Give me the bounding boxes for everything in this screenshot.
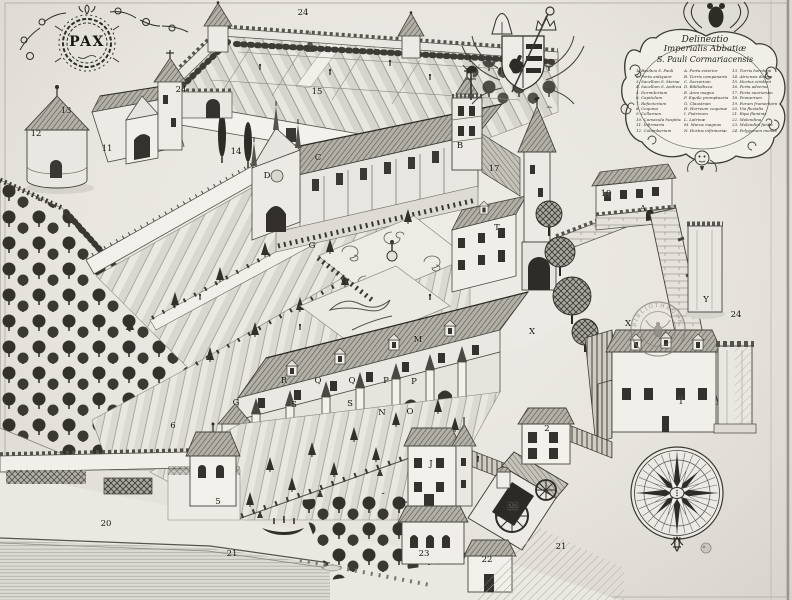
water-wheel-small — [536, 480, 556, 500]
legend-column: A. Porta exteriorB. Turris campanariaC. … — [684, 68, 729, 133]
ruined-tower — [685, 224, 725, 319]
legend-entry: 23. Molendini fanile — [732, 122, 777, 127]
legend-column: 13. Turris horologii14. Atriensis domus1… — [732, 68, 777, 133]
house-2 — [518, 408, 574, 464]
pebble — [701, 543, 711, 553]
eagle-ornament-icon — [684, 2, 748, 32]
cartouche-title-line: S. Pauli Cormariacensis — [630, 55, 780, 64]
compass-rose-icon — [631, 447, 723, 551]
cartouche-text: Delineatio Imperialis Abbatiæ S. Pauli C… — [630, 35, 780, 133]
legend: 1. Basilica S. Pauli2. Porta antiquior3.… — [630, 67, 780, 133]
guest-building — [598, 330, 756, 442]
legend-entry: 12. Columbarium — [636, 128, 681, 133]
house-J — [404, 417, 476, 508]
house-T — [452, 196, 526, 292]
legend-entry: F. Equile promptuaria — [684, 95, 729, 100]
wreath-finial-icon — [79, 5, 95, 14]
dovecote-tower — [25, 85, 94, 194]
legend-column: 1. Basilica S. Pauli2. Porta antiquior3.… — [636, 68, 681, 133]
garden-turret-east — [398, 11, 424, 58]
water-wheel-large — [496, 500, 528, 532]
chapel-23 — [398, 499, 468, 564]
round-tower-east — [714, 344, 756, 433]
pax-motto: PAX — [63, 34, 111, 50]
legend-entry: 13. Turris horologii — [732, 68, 777, 73]
garden-turret-west — [204, 1, 232, 52]
legend-entry: 24. Polygonum monasterii — [732, 128, 777, 133]
legend-entry: N. Hortus infirmariæ — [684, 128, 729, 133]
engraving-plate: BIBLIOTHEQUE IMPERIALE — [0, 0, 792, 600]
cartouche-title-line: Imperialis Abbatiæ — [630, 45, 780, 55]
